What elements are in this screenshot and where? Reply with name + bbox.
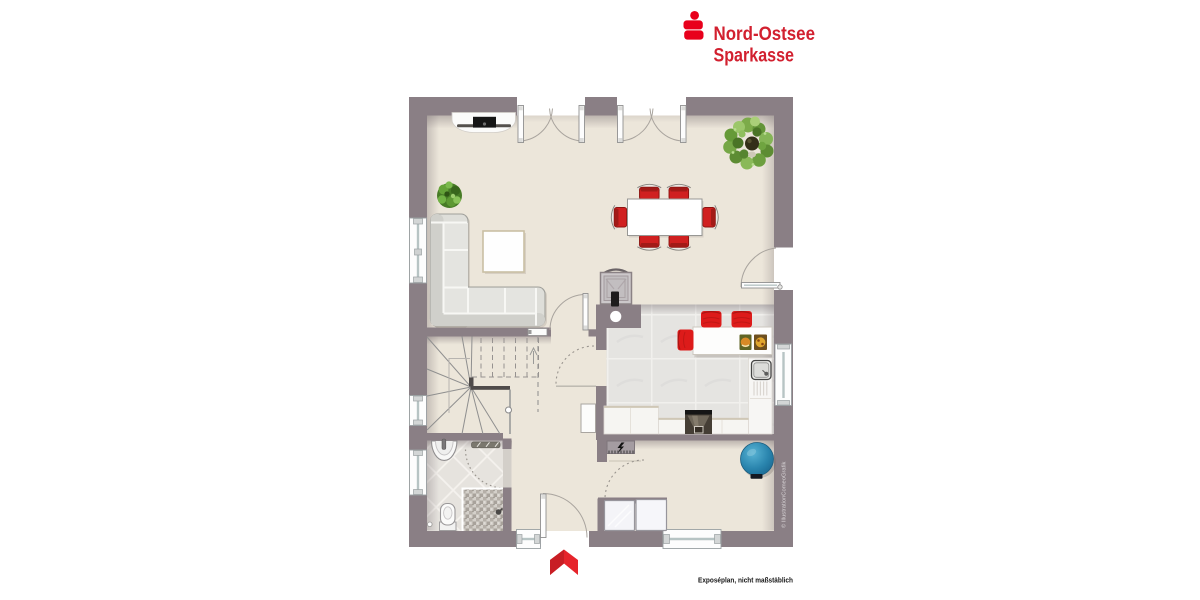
svg-text:Exposéplan, nicht maßstäblich: Exposéplan, nicht maßstäblich (698, 578, 793, 585)
svg-text:Nord-Ostsee: Nord-Ostsee (714, 23, 816, 45)
svg-text:© IllustrationComeoGrafik: © IllustrationComeoGrafik (781, 461, 788, 528)
svg-text:Sparkasse: Sparkasse (714, 44, 795, 66)
